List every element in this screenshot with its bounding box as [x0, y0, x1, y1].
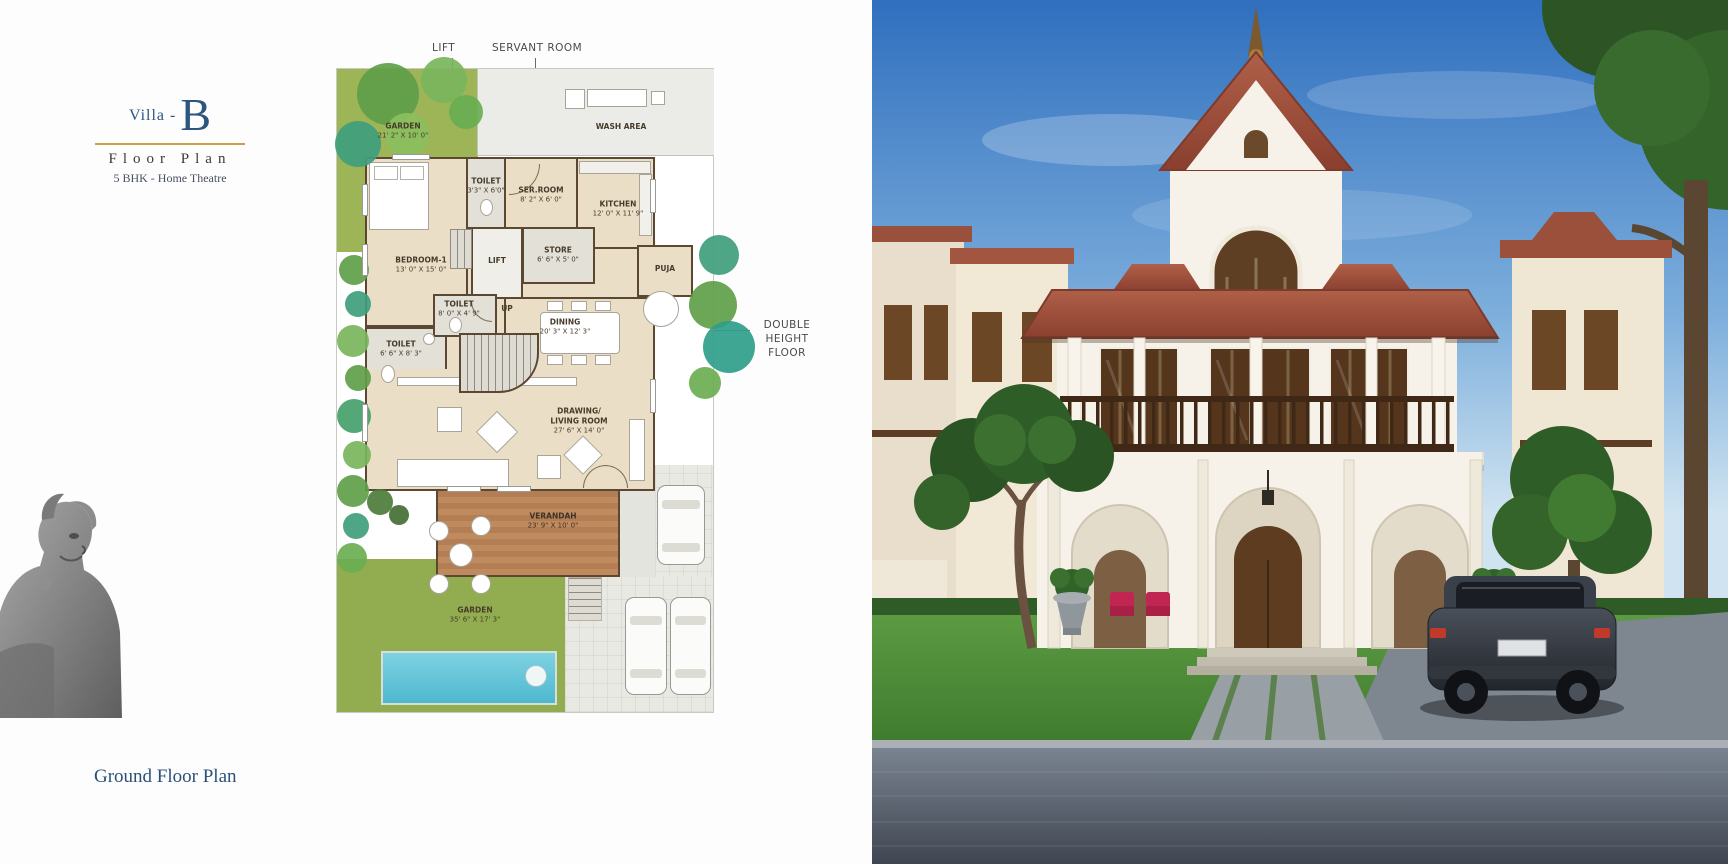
swimming-pool	[381, 651, 557, 705]
window	[392, 154, 430, 160]
chair	[547, 301, 563, 311]
label-store: STORE6' 6" X 5' 0"	[537, 246, 579, 265]
label-verandah: VERANDAH23' 9" X 10' 0"	[528, 512, 579, 531]
window	[650, 379, 656, 413]
side-table	[537, 455, 561, 479]
label-ser-room: SER.ROOM8' 2" X 6' 0"	[518, 186, 563, 205]
chair	[571, 301, 587, 311]
label-up: UP	[501, 304, 513, 314]
servant-room-callout: SERVANT ROOM	[492, 42, 582, 54]
side-walk	[620, 491, 655, 577]
wc	[480, 199, 493, 216]
title-block: Villa - B Floor Plan 5 BHK - Home Theatr…	[95, 88, 245, 186]
plan-title: Floor Plan	[95, 151, 245, 168]
gold-divider	[95, 143, 245, 145]
label-toilet-mid: TOILET8' 0" X 4' 9"	[438, 300, 480, 319]
footer-caption: Ground Floor Plan	[94, 766, 237, 788]
label-garden-bottom: GARDEN35' 6" X 17' 3"	[450, 606, 501, 625]
floor-plan: GARDEN21' 2" X 10' 0" WASH AREA TOILET3'…	[336, 68, 714, 713]
car	[657, 485, 705, 565]
lift-callout: LIFT	[432, 42, 455, 54]
window	[362, 404, 368, 442]
label-bedroom1: BEDROOM-113' 0" X 15' 0"	[395, 256, 446, 275]
window	[650, 179, 656, 213]
bed	[369, 162, 429, 230]
pillow	[374, 166, 398, 180]
verandah-seat	[429, 521, 449, 541]
wc	[449, 317, 462, 333]
plan-subtitle: 5 BHK - Home Theatre	[95, 171, 245, 186]
villa-letter: B	[180, 89, 211, 140]
label-lift: LIFT	[488, 256, 506, 266]
sofa	[397, 459, 509, 487]
side-table	[437, 407, 462, 432]
kitchen-counter	[579, 161, 651, 174]
double-height-line1: DOUBLE	[752, 318, 822, 332]
exterior-steps	[568, 577, 602, 621]
basin	[423, 333, 435, 345]
verandah-table	[449, 543, 473, 567]
label-toilet-left: TOILET6' 6" X 8' 3"	[380, 340, 422, 359]
window	[497, 486, 531, 492]
suv-car	[1420, 576, 1624, 721]
brochure-page: Villa - B Floor Plan 5 BHK - Home Theatr…	[0, 0, 1728, 864]
label-living: DRAWING/ LIVING ROOM27' 6" X 14' 0"	[550, 407, 608, 436]
label-wash-area: WASH AREA	[596, 122, 647, 132]
service-stairs	[450, 229, 472, 269]
villa-prefix: Villa -	[129, 107, 176, 124]
car	[670, 597, 711, 695]
wash-counter	[587, 89, 647, 107]
verandah-seat	[429, 574, 449, 594]
double-height-callout: DOUBLE HEIGHT FLOOR	[752, 318, 822, 361]
wc	[381, 365, 395, 383]
chair	[571, 355, 587, 365]
window	[447, 486, 481, 492]
window	[362, 184, 368, 216]
pool-deck-circle	[525, 665, 547, 687]
statue-image	[0, 492, 128, 718]
label-toilet-top: TOILET3'3" X 6'0"	[467, 177, 504, 196]
label-dining: DINING20' 3" X 12' 3"	[540, 318, 591, 337]
label-puja: PUJA	[655, 264, 675, 274]
verandah-seat	[471, 574, 491, 594]
chair	[595, 301, 611, 311]
chair	[595, 355, 611, 365]
bay-round-seat	[643, 291, 679, 327]
villa-name: Villa - B	[95, 88, 245, 141]
tv-unit	[629, 419, 645, 481]
car	[625, 597, 667, 695]
label-garden-top: GARDEN21' 2" X 10' 0"	[378, 122, 429, 141]
villa-elevation-photo	[872, 0, 1728, 864]
wash-sink	[651, 91, 665, 105]
label-kitchen: KITCHEN12' 0" X 11' 9"	[593, 200, 644, 219]
wash-area-zone	[477, 69, 714, 156]
washing-machine	[565, 89, 585, 109]
double-height-line2: HEIGHT FLOOR	[752, 332, 822, 360]
pillow	[400, 166, 424, 180]
chair	[547, 355, 563, 365]
verandah-seat	[471, 516, 491, 536]
license-plate	[1498, 640, 1546, 656]
window	[362, 244, 368, 276]
